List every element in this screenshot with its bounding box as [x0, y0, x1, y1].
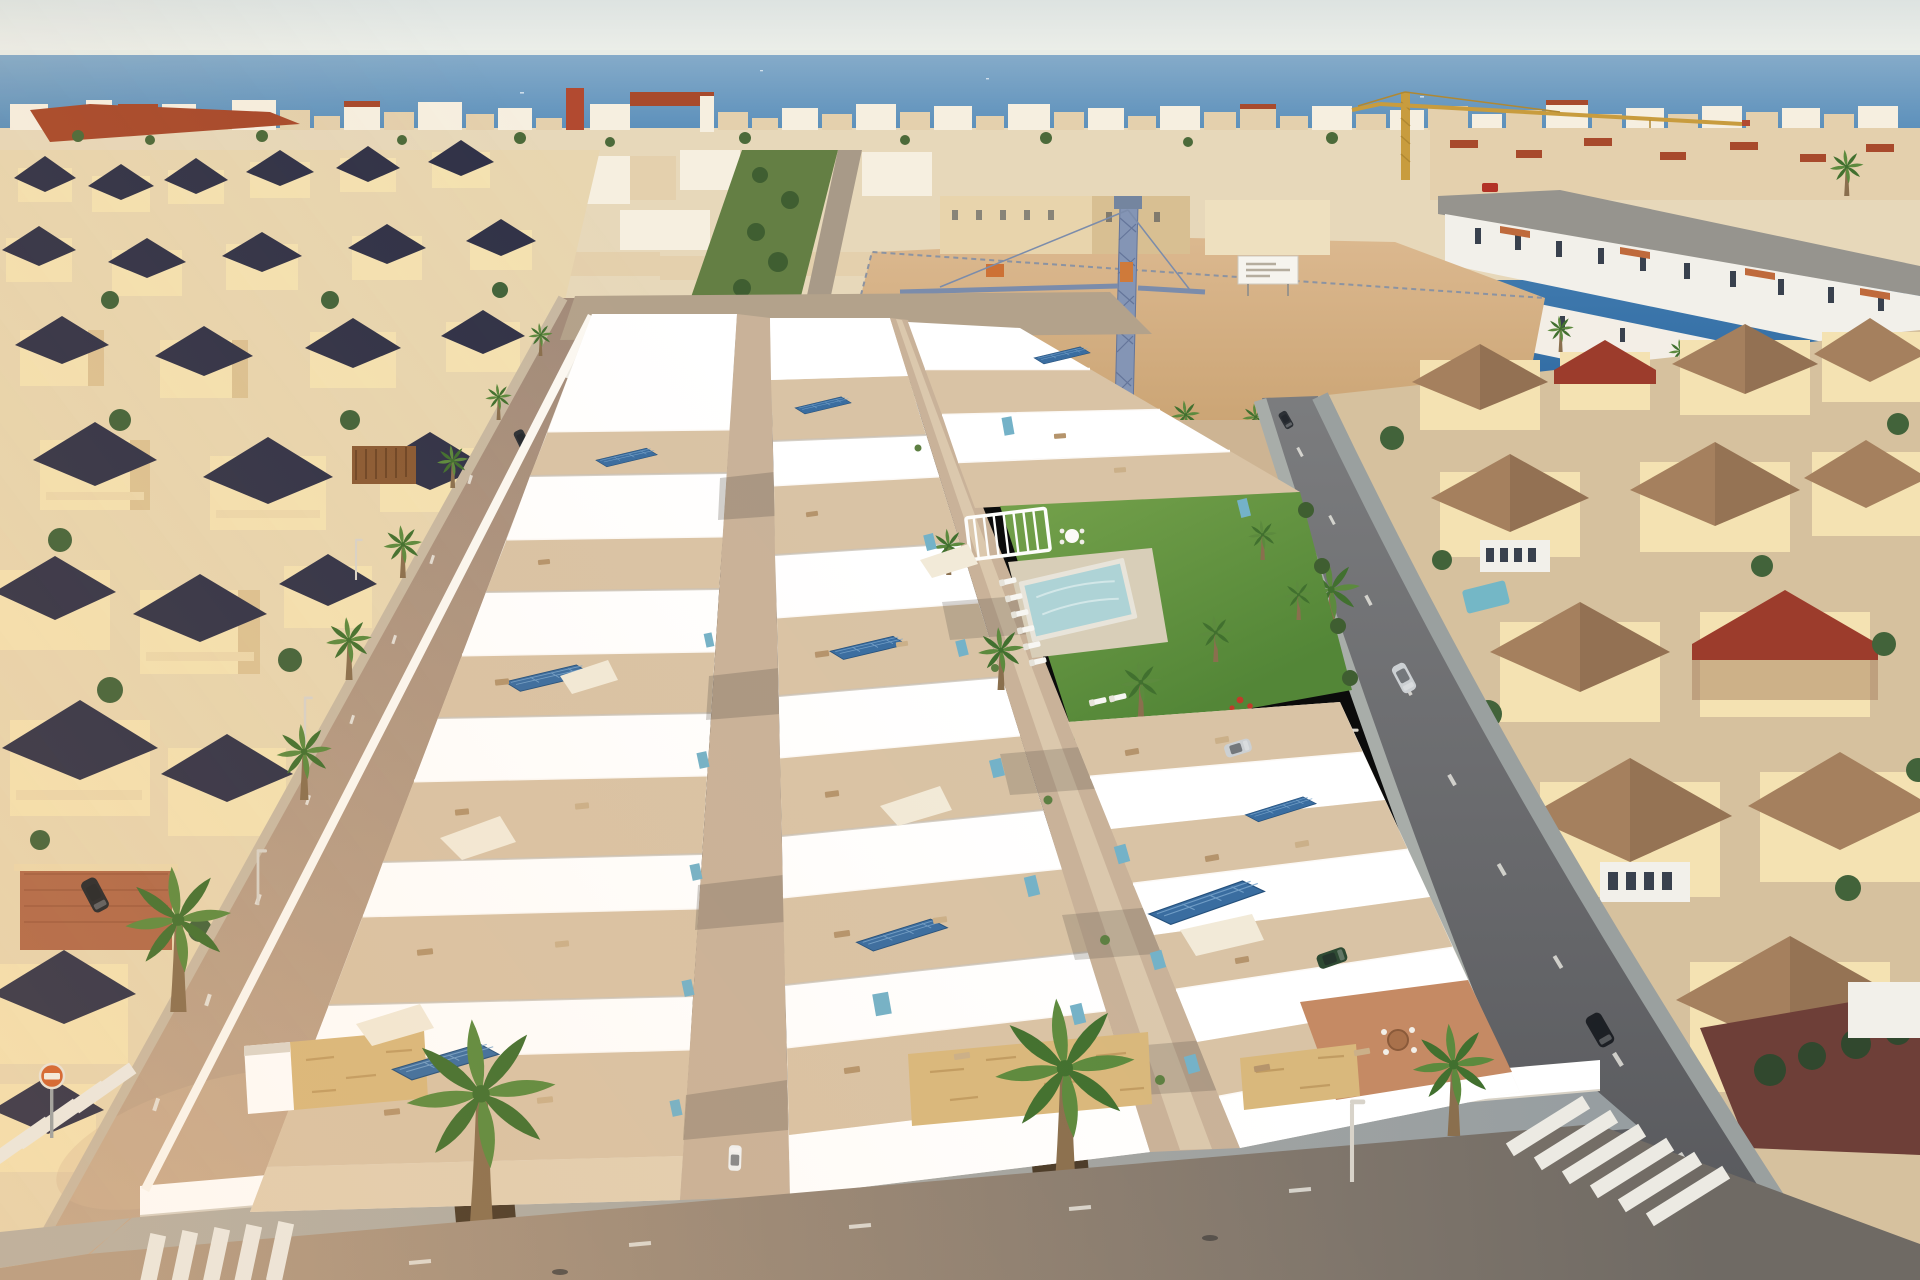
golden-hour-glow	[0, 0, 1920, 1280]
scene-canvas	[0, 0, 1920, 1280]
aerial-photo	[0, 0, 1920, 1280]
